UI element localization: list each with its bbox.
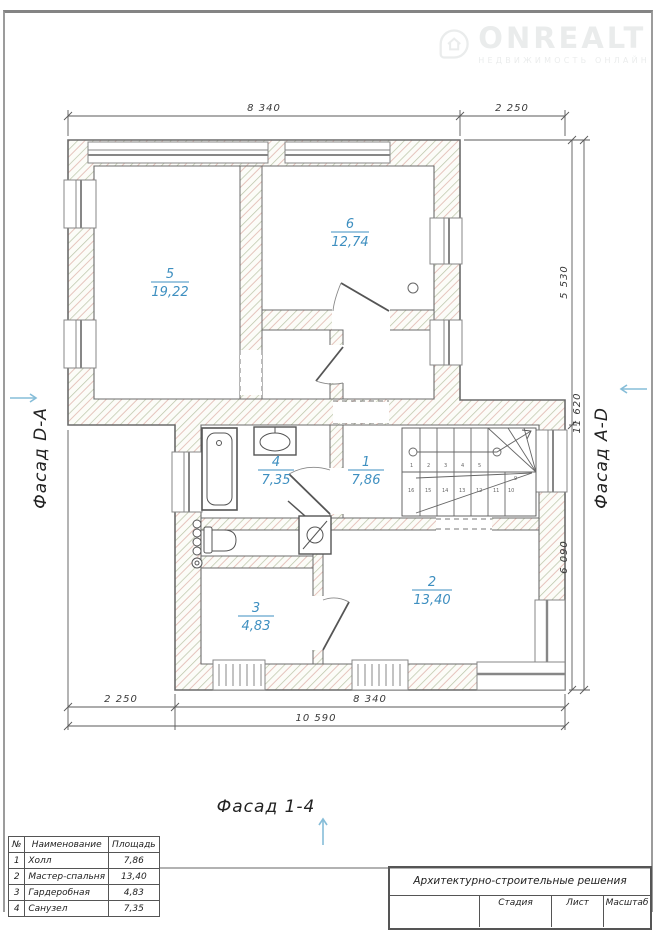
svg-text:5: 5 [166, 267, 174, 282]
svg-text:8 340: 8 340 [353, 694, 387, 705]
title-block-scale: Масштаб [604, 896, 650, 927]
svg-text:12,74: 12,74 [331, 235, 368, 250]
svg-text:9: 9 [514, 476, 517, 482]
walls [68, 140, 565, 690]
table-row: 4 Санузел 7,35 [9, 901, 160, 917]
facade-bottom-label: Фасад 1-4 [217, 797, 316, 817]
facade-left-label: Фасад D-A [31, 407, 51, 509]
svg-text:2: 2 [428, 575, 436, 590]
staircase: 1 2 3 4 5 16 15 14 13 12 11 10 9 [402, 428, 536, 516]
svg-text:4,83: 4,83 [242, 619, 271, 634]
floor-plan: 1 2 3 4 5 16 15 14 13 12 11 10 9 [0, 0, 657, 910]
svg-text:5 530: 5 530 [559, 265, 570, 299]
svg-text:7,35: 7,35 [262, 473, 291, 488]
svg-text:4: 4 [272, 455, 280, 470]
svg-text:6: 6 [346, 217, 354, 232]
svg-text:13,40: 13,40 [413, 593, 450, 608]
svg-text:10 590: 10 590 [296, 713, 337, 724]
svg-text:11: 11 [493, 488, 499, 494]
title-block: Архитектурно-строительные решения Стадия… [388, 866, 652, 930]
svg-text:3: 3 [444, 463, 447, 469]
room-legend-table: № Наименование Площадь 1 Холл 7,86 2 Мас… [8, 836, 160, 917]
svg-text:1: 1 [410, 463, 413, 469]
table-row: 1 Холл 7,86 [9, 853, 160, 869]
svg-text:6 090: 6 090 [559, 540, 570, 574]
svg-text:1: 1 [362, 455, 370, 470]
legend-header-area: Площадь [109, 837, 160, 853]
svg-text:19,22: 19,22 [151, 285, 188, 300]
table-row: 2 Мастер-спальня 13,40 [9, 869, 160, 885]
svg-text:5: 5 [478, 463, 481, 469]
svg-text:12: 12 [476, 488, 482, 494]
title-block-sheet: Лист [552, 896, 604, 927]
svg-text:2 250: 2 250 [495, 103, 529, 114]
svg-text:14: 14 [442, 488, 448, 494]
toilet [204, 527, 236, 553]
svg-text:16: 16 [408, 488, 414, 494]
svg-text:11 620: 11 620 [572, 393, 583, 434]
svg-text:2: 2 [427, 463, 430, 469]
boiler [299, 516, 331, 554]
svg-text:4: 4 [461, 463, 464, 469]
title-block-empty-cell [390, 896, 480, 927]
table-row: 3 Гардеробная 4,83 [9, 885, 160, 901]
legend-header-name: Наименование [25, 837, 109, 853]
svg-text:13: 13 [459, 488, 465, 494]
legend-header-num: № [9, 837, 25, 853]
svg-text:2 250: 2 250 [104, 694, 138, 705]
title-block-stage: Стадия [480, 896, 552, 927]
facade-right-label: Фасад A-D [592, 407, 612, 509]
svg-text:10: 10 [508, 488, 514, 494]
svg-text:15: 15 [425, 488, 431, 494]
svg-text:3: 3 [252, 601, 260, 616]
svg-text:8 340: 8 340 [247, 103, 281, 114]
svg-text:7,86: 7,86 [352, 473, 381, 488]
legend-header-row: № Наименование Площадь [9, 837, 160, 853]
title-block-title: Архитектурно-строительные решения [390, 868, 650, 896]
